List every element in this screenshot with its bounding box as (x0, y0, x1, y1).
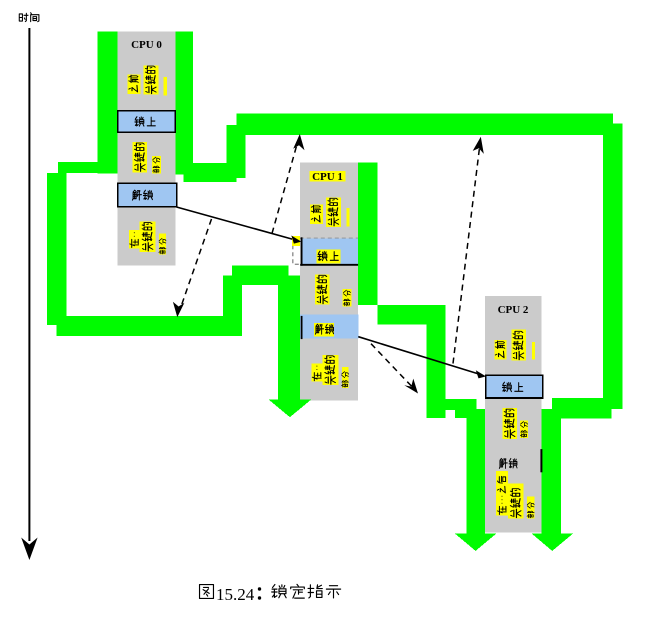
svg-text:15.24: 15.24 (216, 585, 255, 604)
svg-text:CPU 2: CPU 2 (498, 304, 529, 316)
svg-text:CPU 0: CPU 0 (131, 39, 162, 51)
svg-text:CPU 1: CPU 1 (312, 171, 343, 183)
